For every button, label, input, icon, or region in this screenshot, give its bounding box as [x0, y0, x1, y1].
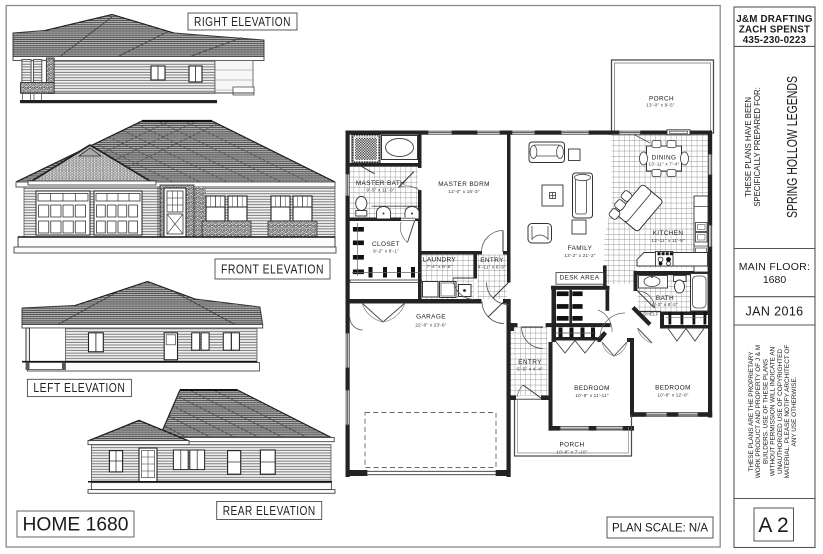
- svg-text:RIGHT ELEVATION: RIGHT ELEVATION: [194, 15, 291, 29]
- svg-text:WORK PRODUCT AND PROPERTY OF J: WORK PRODUCT AND PROPERTY OF J & M: [755, 345, 762, 479]
- svg-text:REAR ELEVATION: REAR ELEVATION: [223, 504, 316, 518]
- svg-text:7'-4" x 6'-5": 7'-4" x 6'-5": [427, 264, 453, 269]
- svg-text:MASTER BDRM: MASTER BDRM: [438, 181, 490, 188]
- svg-text:13'-11" x 7'-4": 13'-11" x 7'-4": [649, 162, 680, 167]
- svg-text:9'-2" x 8'-1": 9'-2" x 8'-1": [373, 249, 399, 254]
- svg-text:MATERIAL. PLEASE NOTIFY ARCHIT: MATERIAL. PLEASE NOTIFY ARCHITECT OF: [784, 345, 791, 479]
- svg-text:9'-5" x 11'-0": 9'-5" x 11'-0": [366, 188, 394, 193]
- svg-text:10'-8" x 12'-0": 10'-8" x 12'-0": [657, 393, 688, 398]
- svg-text:435-230-0223: 435-230-0223: [743, 35, 807, 46]
- svg-text:FAMILY: FAMILY: [568, 245, 593, 252]
- svg-text:ANY USE OTHERWISE.: ANY USE OTHERWISE.: [791, 376, 798, 446]
- svg-text:6'-2" x 8'-2": 6'-2" x 8'-2": [652, 302, 678, 307]
- svg-text:PORCH: PORCH: [649, 96, 674, 103]
- svg-text:PORCH: PORCH: [559, 442, 584, 449]
- svg-text:WITHOUT PERMISSION WILL INDICA: WITHOUT PERMISSION WILL INDICATE AN: [770, 346, 777, 476]
- svg-text:4'-11" x 6'-5": 4'-11" x 6'-5": [478, 265, 506, 270]
- svg-text:DESK AREA: DESK AREA: [560, 275, 600, 282]
- svg-text:13'-11" x 11'-9": 13'-11" x 11'-9": [651, 238, 684, 243]
- svg-text:THESE PLANS ARE THE PROPRIETAR: THESE PLANS ARE THE PROPRIETARY: [748, 351, 755, 472]
- svg-text:MASTER BATH: MASTER BATH: [356, 180, 405, 187]
- svg-text:UNAUTHORIZED USE OF COPYRIGHTE: UNAUTHORIZED USE OF COPYRIGHTED: [777, 349, 784, 474]
- svg-text:DINING: DINING: [652, 155, 677, 162]
- svg-text:SHELF: SHELF: [643, 312, 659, 317]
- svg-text:SPRING HOLLOW LEGENDS: SPRING HOLLOW LEGENDS: [785, 76, 801, 218]
- svg-text:KITCHEN: KITCHEN: [653, 230, 684, 237]
- svg-text:LEFT ELEVATION: LEFT ELEVATION: [33, 381, 125, 395]
- svg-text:ZACH SPENST: ZACH SPENST: [739, 25, 810, 36]
- svg-text:13'-2" x 21'-2": 13'-2" x 21'-2": [564, 253, 595, 258]
- svg-text:THESE PLANS HAVE BEEN: THESE PLANS HAVE BEEN: [744, 97, 753, 197]
- svg-text:5'-5" x 4'-4": 5'-5" x 4'-4": [517, 367, 543, 372]
- svg-text:BEDROOM: BEDROOM: [655, 385, 691, 392]
- svg-text:PLAN SCALE: N/A: PLAN SCALE: N/A: [612, 521, 709, 535]
- svg-text:LAUNDRY: LAUNDRY: [423, 257, 457, 264]
- svg-text:10'-8" x 11'-11": 10'-8" x 11'-11": [575, 393, 608, 398]
- svg-text:BATH: BATH: [656, 295, 674, 302]
- svg-text:BEDROOM: BEDROOM: [574, 385, 610, 392]
- svg-text:JAN 2016: JAN 2016: [745, 305, 803, 319]
- svg-text:22'-0" x 23'-6": 22'-0" x 23'-6": [415, 323, 446, 328]
- svg-text:12'-0" x 16'-3": 12'-0" x 16'-3": [448, 189, 479, 194]
- svg-text:HOME 1680: HOME 1680: [23, 514, 129, 536]
- svg-text:SPECIFICALLY PREPARED FOR:: SPECIFICALLY PREPARED FOR:: [753, 87, 762, 207]
- svg-text:MAIN FLOOR:: MAIN FLOOR:: [739, 261, 811, 273]
- svg-text:1680: 1680: [763, 274, 787, 286]
- svg-text:A 2: A 2: [758, 514, 788, 537]
- svg-text:BUILDERS. USE OF THESE PLANS: BUILDERS. USE OF THESE PLANS: [762, 359, 769, 464]
- svg-text:FRONT ELEVATION: FRONT ELEVATION: [221, 262, 324, 276]
- svg-text:13'-0" x 9'-5": 13'-0" x 9'-5": [646, 103, 675, 108]
- svg-text:J&M DRAFTING: J&M DRAFTING: [736, 14, 813, 25]
- svg-text:CLOSET: CLOSET: [372, 241, 400, 248]
- svg-text:ENTRY: ENTRY: [518, 359, 542, 366]
- svg-text:GARAGE: GARAGE: [416, 314, 446, 321]
- svg-text:10'-8" x 7'-10": 10'-8" x 7'-10": [556, 450, 587, 455]
- svg-text:ENTRY: ENTRY: [480, 257, 504, 264]
